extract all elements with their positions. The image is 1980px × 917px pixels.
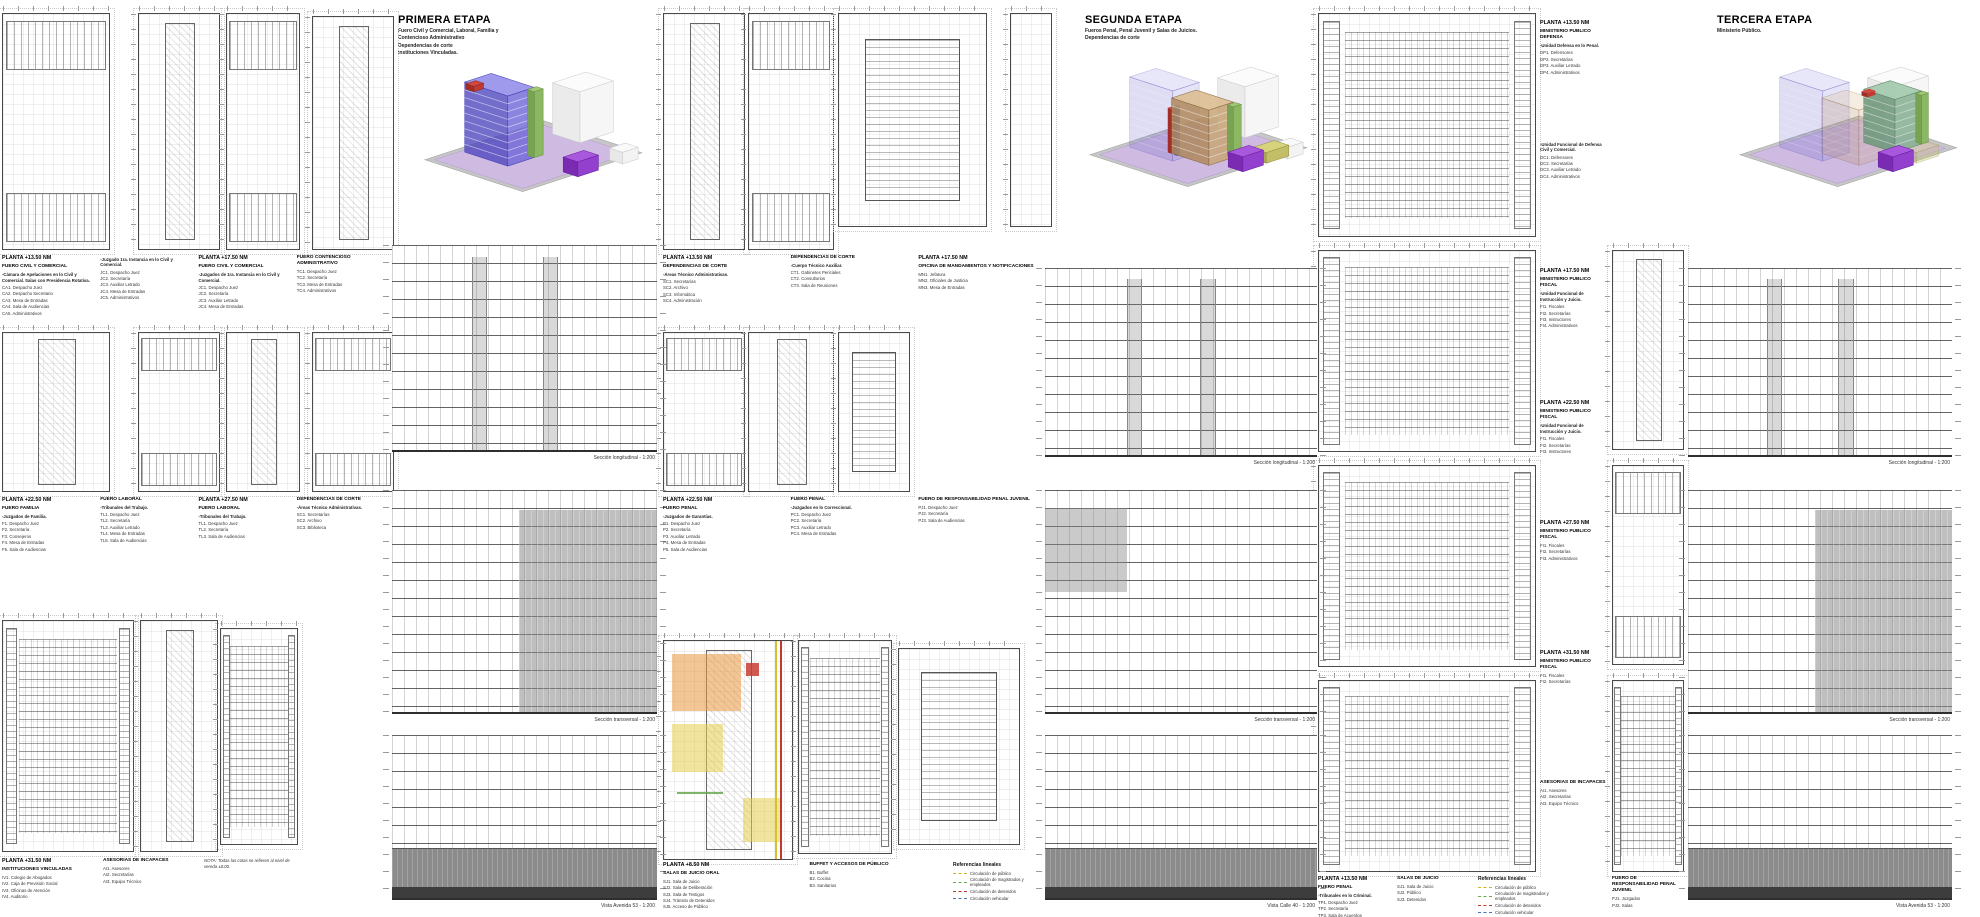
- floor-plan: [663, 13, 745, 250]
- legend-item-label: Circulación de detenidos: [1495, 903, 1541, 908]
- caption-column: FUERO DE RESPONSABILIDAD PENAL JUVENILPJ…: [918, 497, 1038, 524]
- legend-item-label: Circulación vehicular: [1495, 910, 1534, 915]
- caption-column: FUERO PENAL-Juzgados en lo Correccional.…: [791, 497, 911, 538]
- stage-name: TERCERA ETAPA: [1717, 14, 1907, 26]
- program-heading: FUERO PENAL: [791, 497, 911, 503]
- program-heading: FUERO CIVIL Y COMERCIAL: [2, 264, 92, 270]
- legend-line-swatch: [953, 873, 967, 874]
- caption-column: BUFFET Y ACCESOS DE PÚBLICOB1. BuffetB2.…: [810, 862, 949, 889]
- legend-item-label: Circulación vehicular: [970, 896, 1009, 901]
- stage-name: SEGUNDA ETAPA: [1085, 14, 1300, 26]
- legend-line-swatch: [1478, 905, 1492, 906]
- corridor-strip: [1514, 472, 1531, 660]
- office-strip: [141, 338, 216, 372]
- caption-column: PLANTA +13.50 NMDEPENDENCIAS DE CORTE-Ár…: [663, 255, 783, 305]
- planta-level-label: PLANTA +27.50 NM: [1540, 520, 1606, 526]
- legend-item-label: Circulación de público: [1495, 885, 1536, 890]
- floor-plan: [138, 332, 220, 492]
- workstation-area: [230, 646, 288, 827]
- caption-column: -Juzgado 1ra. Instancia en lo Civil y Co…: [100, 255, 190, 302]
- corridor-strip: [223, 635, 230, 837]
- office-strip: [6, 21, 106, 70]
- workstation-area: [1345, 32, 1509, 219]
- floor-plan: [838, 13, 987, 227]
- program-heading: MINISTERIO PUBLICO FISCAL: [1540, 409, 1606, 421]
- facade-plinth: [1688, 887, 1952, 898]
- program-heading: ASESORIAS DE INCAPACES: [103, 858, 196, 864]
- floor-plan: [2, 332, 110, 492]
- caption-column: PLANTA +17.50 NMMINISTERIO PUBLICO FISCA…: [1540, 268, 1606, 330]
- caption-column: PLANTA +27.50 NMMINISTERIO PUBLICO FISCA…: [1540, 520, 1606, 562]
- planta-level-label: PLANTA +22.50 NM: [1540, 400, 1606, 406]
- caption-column: SALAS DE JUICIOSJ1. Sala de JuicioSJ2. P…: [1397, 876, 1468, 903]
- office-strip: [1615, 472, 1681, 514]
- program-heading: INSTITUCIONES VINCULADAS: [2, 867, 95, 873]
- floor-plan: [1010, 13, 1052, 227]
- program-item: TP3. Sala de Acuerdos: [1318, 913, 1389, 917]
- legend-item: Circulación de magistrados y empleados: [953, 877, 1043, 887]
- caption-column: FUERO CONTENCIOSO ADMINISTRATIVOTC1. Des…: [297, 255, 387, 295]
- program-subheading: -Áreas Técnico Administrativas.: [297, 505, 387, 511]
- legend-item: Circulación de público: [1478, 885, 1568, 890]
- caption-column: DEPENDENCIAS DE CORTE-Cuerpo Técnico Aux…: [791, 255, 911, 289]
- elevator-shaft: [1838, 279, 1853, 455]
- elevation-drawing: Sección transversal - 1:200: [1688, 490, 1952, 714]
- facade-dark-panel: [519, 510, 657, 712]
- elevation-caption: Sección transversal - 1:200: [1254, 717, 1315, 723]
- axonometric-massing-svg: [1735, 40, 1970, 210]
- legend-line-swatch: [1478, 912, 1492, 913]
- legend-title: Referencias lineales: [1478, 876, 1568, 882]
- program-item: MN3. Mesa de Entradas: [918, 285, 1038, 291]
- program-item: CA5. Administrativos: [2, 311, 92, 317]
- elevation-caption: Sección longitudinal - 1:200: [1254, 460, 1315, 466]
- elevation-caption: Sección longitudinal - 1:200: [1889, 460, 1950, 466]
- program-subheading: -Unidad Defensa en lo Penal.: [1540, 43, 1606, 49]
- elevation-caption: Sección longitudinal - 1:200: [594, 455, 655, 461]
- program-item: FI3. Instructores: [1540, 449, 1606, 455]
- office-strip: [666, 338, 741, 372]
- hall-area: [852, 352, 897, 472]
- line-references-legend: Referencias linealesCirculación de públi…: [953, 862, 1043, 903]
- program-item: B3. Sanitarios: [810, 883, 949, 889]
- floor-plan: [140, 620, 218, 852]
- planta-level-label: PLANTA +27.50 NM: [199, 497, 289, 503]
- line-references-legend: Referencias linealesCirculación de públi…: [1478, 876, 1568, 917]
- planta-level-label: PLANTA +31.50 NM: [1540, 650, 1606, 656]
- elevator-shaft: [1767, 279, 1782, 455]
- program-heading: FUERO PENAL: [1318, 885, 1389, 891]
- legend-item: Circulación de detenidos: [953, 889, 1043, 894]
- highlight-orange: [672, 654, 741, 711]
- office-strip: [229, 193, 297, 242]
- program-subheading: -Unidad Funcional de Defensa Civil y Com…: [1540, 142, 1606, 154]
- floor-plan: [312, 16, 394, 250]
- program-heading: FUERO LABORAL: [199, 506, 289, 512]
- caption-block: -Unidad Funcional de Defensa Civil y Com…: [1540, 140, 1606, 180]
- floor-plan: [898, 648, 1020, 845]
- floor-plan: [1318, 13, 1536, 237]
- program-heading: DEPENDENCIAS DE CORTE: [791, 255, 911, 261]
- program-subheading: -Juzgados de Familia.: [2, 514, 92, 520]
- caption-column: ASESORIAS DE INCAPACESAI1. AsesoresAI2. …: [103, 858, 196, 885]
- program-subheading: -Juzgados de Garantías.: [663, 514, 783, 520]
- facade-plinth: [392, 887, 657, 898]
- service-core: [690, 23, 719, 239]
- caption-block: ASESORIAS DE INCAPACESAI1. AsesoresAI2. …: [1540, 780, 1606, 807]
- service-core: [166, 630, 194, 842]
- elevation-drawing: Sección longitudinal - 1:200: [392, 245, 657, 452]
- legend-item: Circulación de detenidos: [1478, 903, 1568, 908]
- service-core: [165, 23, 194, 239]
- legend-line-swatch: [1478, 896, 1492, 897]
- program-item: PC4. Mesa de Entradas: [791, 531, 911, 537]
- presentation-sheet: PRIMERA ETAPA Fuero Civil y Comercial, L…: [0, 0, 1980, 917]
- workstation-area: [1345, 482, 1509, 650]
- program-heading: MINISTERIO PUBLICO DEFENSA: [1540, 29, 1606, 41]
- legend-item: Circulación vehicular: [1478, 910, 1568, 915]
- caption-block: PLANTA +13.50 NMFUERO CIVIL Y COMERCIAL-…: [2, 255, 387, 317]
- caption-column: PLANTA +17.50 NMOFICINA DE MANDAMIENTOS …: [918, 255, 1038, 291]
- caption-column: FUERO DE RESPONSABILIDAD PENAL JUVENILPJ…: [1612, 876, 1682, 909]
- legend-item-label: Circulación de detenidos: [970, 889, 1016, 894]
- circulation-line-yellow: [775, 641, 777, 859]
- program-heading: FUERO PENAL: [663, 506, 783, 512]
- floor-plan: [220, 628, 298, 845]
- legend-item-label: Circulación de magistrados y empleados: [970, 877, 1043, 887]
- floor-plan: [226, 13, 300, 250]
- planta-level-label: PLANTA +13.50 NM: [1318, 876, 1389, 882]
- elevation-caption: Vista Avenida 53 - 1:200: [601, 903, 655, 909]
- program-subheading: -Áreas Técnico Administrativas.: [663, 272, 783, 278]
- program-subheading: -Juzgados en lo Correccional.: [791, 505, 911, 511]
- planta-level-label: PLANTA +17.50 NM: [199, 255, 289, 261]
- floor-plan: [1612, 680, 1684, 872]
- floor-plan: [838, 332, 910, 492]
- corridor-strip: [1514, 257, 1531, 445]
- program-item: PJ2. Salas: [1612, 903, 1682, 909]
- elevation-drawing: Vista Avenida 53 - 1:200: [1688, 735, 1952, 900]
- elevation-drawing: Sección longitudinal - 1:200: [1045, 268, 1317, 457]
- corridor-strip: [801, 647, 809, 846]
- planta-level-label: PLANTA +13.50 NM: [1540, 20, 1606, 26]
- planta-level-label: PLANTA +17.50 NM: [1540, 268, 1606, 274]
- office-strip: [752, 193, 831, 242]
- facade-plinth: [1045, 887, 1317, 898]
- workstation-area: [1621, 696, 1674, 856]
- caption-column: PLANTA +31.50 NMMINISTERIO PUBLICO FISCA…: [1540, 650, 1606, 686]
- elevation-drawing: Sección transversal - 1:200: [392, 490, 657, 714]
- legend-line-swatch: [953, 891, 967, 892]
- legend-item: Circulación de público: [953, 871, 1043, 876]
- program-item: JC4. Mesa de Entradas: [199, 304, 289, 310]
- program-subheading: -Cámara de Apelaciones en lo Civil y Com…: [2, 272, 92, 284]
- caption-block: FUERO DE RESPONSABILIDAD PENAL JUVENILPJ…: [1612, 876, 1682, 909]
- elevation-drawing: Sección longitudinal - 1:200: [1688, 268, 1952, 457]
- service-core: [339, 26, 368, 239]
- program-item: SJ5. Acceso de Público: [663, 904, 802, 910]
- office-strip: [752, 21, 831, 70]
- corridor-strip: [6, 628, 17, 844]
- caption-block: PLANTA +13.50 NMDEPENDENCIAS DE CORTE-Ár…: [663, 255, 1038, 305]
- floor-plan: [2, 13, 110, 250]
- highlight-yellow: [672, 724, 723, 772]
- office-strip: [315, 338, 390, 372]
- stage-title-segunda: SEGUNDA ETAPA Fueros Penal, Penal Juveni…: [1085, 14, 1300, 43]
- hall-area: [921, 672, 998, 820]
- axonometric-massing-svg: [420, 45, 655, 215]
- caption-column: PLANTA +22.50 NMFUERO FAMILIA-Juzgados d…: [2, 497, 92, 553]
- planta-level-label: PLANTA +17.50 NM: [918, 255, 1038, 261]
- legend-line-swatch: [1478, 887, 1492, 888]
- program-heading: SALAS DE JUICIO: [1397, 876, 1468, 882]
- program-subheading: -Tribunales del Trabajo.: [199, 514, 289, 520]
- planta-level-label: PLANTA +13.50 NM: [2, 255, 92, 261]
- service-core: [38, 339, 76, 484]
- service-core: [777, 339, 808, 484]
- corridor-strip: [288, 635, 295, 837]
- floor-plan: [748, 332, 834, 492]
- program-subheading: -Cuerpo Técnico Auxiliar.: [791, 263, 911, 269]
- corridor-strip: [881, 647, 889, 846]
- floor-plan: [138, 13, 220, 250]
- caption-block: PLANTA +13.50 NMFUERO PENAL-Tribunales e…: [1318, 876, 1468, 917]
- service-core: [251, 339, 277, 484]
- elevator-shaft: [472, 257, 487, 450]
- program-item: DC4. Administrativos: [1540, 174, 1606, 180]
- program-heading: FUERO DE RESPONSABILIDAD PENAL JUVENIL: [1612, 876, 1682, 895]
- floor-plan: [2, 620, 134, 852]
- caption-block: PLANTA +13.50 NMMINISTERIO PUBLICO DEFEN…: [1540, 20, 1606, 76]
- floor-plan: [1318, 250, 1536, 452]
- legend-line-swatch: [953, 898, 967, 899]
- planta-level-label: PLANTA +31.50 NM: [2, 858, 95, 864]
- legend-title: Referencias lineales: [953, 862, 1043, 868]
- floor-plan: [748, 13, 834, 250]
- planta-level-label: PLANTA +22.50 NM: [663, 497, 783, 503]
- program-item: TL5. Sala de Audiencias: [100, 538, 190, 544]
- elevation-caption: Sección transversal - 1:200: [594, 717, 655, 723]
- program-item: IV4. Auditorio: [2, 894, 95, 900]
- program-item: PJ3. Sala de Audiencias: [918, 518, 1038, 524]
- legend-item-label: Circulación de público: [970, 871, 1011, 876]
- circulation-line-green: [677, 792, 723, 794]
- program-item: FI2. Secretarías: [1540, 679, 1606, 685]
- corridor-strip: [1323, 21, 1340, 230]
- program-subheading: -Tribunales del Trabajo.: [100, 505, 190, 511]
- facade-dark-panel: [1815, 510, 1952, 712]
- floor-plan: [226, 332, 300, 492]
- floor-plan: [798, 640, 892, 854]
- workstation-area: [810, 658, 880, 836]
- office-strip: [666, 453, 741, 487]
- office-strip: [229, 21, 297, 70]
- program-heading: FUERO CONTENCIOSO ADMINISTRATIVO: [297, 255, 387, 267]
- elevation-caption: Vista Calle 40 - 1:200: [1267, 903, 1315, 909]
- caption-column: PLANTA +13.50 NMFUERO CIVIL Y COMERCIAL-…: [2, 255, 92, 317]
- program-item: JC5. Administrativos: [100, 295, 190, 301]
- office-strip: [141, 453, 216, 487]
- program-item: AI3. Equipo Técnico: [103, 879, 196, 885]
- program-heading: DEPENDENCIAS DE CORTE: [297, 497, 387, 503]
- axonometric-massing-svg: [1085, 40, 1320, 210]
- floor-plan: [663, 332, 745, 492]
- caption-column: PLANTA +27.50 NMFUERO LABORAL-Tribunales…: [199, 497, 289, 540]
- program-item: DP4. Administrativos: [1540, 70, 1606, 76]
- legend-item: Circulación vehicular: [953, 896, 1043, 901]
- caption-block: PLANTA +31.50 NMMINISTERIO PUBLICO FISCA…: [1540, 650, 1606, 686]
- program-heading: MINISTERIO PUBLICO FISCAL: [1540, 529, 1606, 541]
- caption-column: PLANTA +17.50 NMFUERO CIVIL Y COMERCIAL-…: [199, 255, 289, 311]
- elevator-shaft: [1127, 279, 1143, 455]
- highlight-red: [746, 663, 759, 676]
- workstation-area: [19, 639, 118, 832]
- planta-level-label: PLANTA +22.50 NM: [2, 497, 92, 503]
- corridor-strip: [119, 628, 130, 844]
- program-heading: BUFFET Y ACCESOS DE PÚBLICO: [810, 862, 949, 868]
- caption-block: PLANTA +8.50 NMSALAS DE JUICIO ORALSJ1. …: [663, 862, 948, 911]
- workstation-area: [1345, 267, 1509, 435]
- program-item: CT3. Sala de Reuniones: [791, 283, 911, 289]
- legend-item-label: Circulación de magistrados y empleados: [1495, 891, 1568, 901]
- program-heading: FUERO CIVIL Y COMERCIAL: [199, 264, 289, 270]
- program-item: FI3. Administrativos: [1540, 556, 1606, 562]
- corridor-strip: [1614, 687, 1621, 866]
- service-core: [1636, 259, 1662, 441]
- office-strip: [1615, 616, 1681, 658]
- stage-title-tercera: TERCERA ETAPA Ministerio Público.: [1717, 14, 1907, 35]
- caption-column: ASESORIAS DE INCAPACESAI1. AsesoresAI2. …: [1540, 780, 1606, 807]
- planta-level-label: PLANTA +13.50 NM: [663, 255, 783, 261]
- program-heading: DEPENDENCIAS DE CORTE: [663, 264, 783, 270]
- elevation-drawing: Sección transversal - 1:200: [1045, 490, 1317, 714]
- floor-plan: [312, 332, 394, 492]
- program-subheading: -Unidad Funcional de Instrucción y Juici…: [1540, 291, 1606, 303]
- caption-column: -Unidad Funcional de Defensa Civil y Com…: [1540, 140, 1606, 180]
- program-subheading: -Juzgados de 1ra. Instancia en lo Civil …: [199, 272, 289, 284]
- caption-column: NOTA: Todas las cotas se refieren al niv…: [204, 858, 297, 870]
- axonometric-view: [420, 45, 655, 215]
- caption-block: PLANTA +27.50 NMMINISTERIO PUBLICO FISCA…: [1540, 520, 1606, 562]
- corridor-strip: [1514, 21, 1531, 230]
- program-item: TC4. Administrativos: [297, 288, 387, 294]
- workstation-area: [1345, 696, 1509, 856]
- caption-column: FUERO LABORAL-Tribunales del Trabajo.TL1…: [100, 497, 190, 544]
- caption-column: PLANTA +8.50 NMSALAS DE JUICIO ORALSJ1. …: [663, 862, 802, 911]
- stage-name: PRIMERA ETAPA: [398, 14, 568, 26]
- program-heading: MINISTERIO PUBLICO FISCAL: [1540, 277, 1606, 289]
- circulation-line-red: [780, 641, 782, 859]
- caption-block: PLANTA +22.50 NMFUERO PENAL-Juzgados de …: [663, 497, 1038, 553]
- program-heading: FUERO LABORAL: [100, 497, 190, 503]
- program-item: SJ3. Detenidos: [1397, 897, 1468, 903]
- program-heading: FUERO DE RESPONSABILIDAD PENAL JUVENIL: [918, 497, 1038, 503]
- caption-column: PLANTA +22.50 NMMINISTERIO PUBLICO FISCA…: [1540, 400, 1606, 455]
- caption-block: PLANTA +22.50 NMMINISTERIO PUBLICO FISCA…: [1540, 400, 1606, 455]
- caption-column: PLANTA +13.50 NMFUERO PENAL-Tribunales e…: [1318, 876, 1389, 917]
- floor-plan: [1612, 250, 1684, 450]
- program-subheading: -Unidad Funcional de Instrucción y Juici…: [1540, 423, 1606, 435]
- caption-column: DEPENDENCIAS DE CORTE-Áreas Técnico Admi…: [297, 497, 387, 531]
- elevation-caption: Vista Avenida 53 - 1:200: [1896, 903, 1950, 909]
- program-item: SC3. Biblioteca: [297, 525, 387, 531]
- program-heading: SALAS DE JUICIO ORAL: [663, 871, 802, 877]
- note-text: NOTA: Todas las cotas se refieren al niv…: [204, 858, 297, 870]
- elevation-caption: Sección transversal - 1:200: [1889, 717, 1950, 723]
- planta-level-label: PLANTA +8.50 NM: [663, 862, 802, 868]
- legend-line-swatch: [953, 882, 967, 883]
- caption-column: PLANTA +31.50 NMINSTITUCIONES VINCULADAS…: [2, 858, 95, 900]
- program-item: P5. Sala de Audiencias: [663, 547, 783, 553]
- floor-plan: [1318, 680, 1536, 872]
- program-heading: FUERO FAMILIA: [2, 506, 92, 512]
- program-item: TL3. Sala de Audiencias: [199, 534, 289, 540]
- facade-dark-panel: [1045, 508, 1127, 592]
- floor-plan: [1612, 465, 1684, 665]
- caption-block: PLANTA +22.50 NMFUERO FAMILIA-Juzgados d…: [2, 497, 387, 553]
- program-item: SC4. Administración: [663, 298, 783, 304]
- program-item: AI3. Equipo Técnico: [1540, 801, 1606, 807]
- caption-column: PLANTA +13.50 NMMINISTERIO PUBLICO DEFEN…: [1540, 20, 1606, 76]
- axonometric-view: [1085, 40, 1320, 210]
- axonometric-view: [1735, 40, 1970, 210]
- elevation-drawing: Vista Avenida 53 - 1:200: [392, 735, 657, 900]
- program-subheading: -Tribunales en lo Criminal.: [1318, 893, 1389, 899]
- office-strip: [6, 193, 106, 242]
- corridor-strip: [1514, 687, 1531, 866]
- caption-block: PLANTA +17.50 NMMINISTERIO PUBLICO FISCA…: [1540, 268, 1606, 330]
- floor-plan: [1318, 465, 1536, 667]
- elevation-drawing: Vista Calle 40 - 1:200: [1045, 735, 1317, 900]
- program-heading: MINISTERIO PUBLICO FISCAL: [1540, 659, 1606, 671]
- program-item: F5. Sala de Audiencias: [2, 547, 92, 553]
- program-heading: OFICINA DE MANDAMIENTOS Y NOTIFICACIONES: [918, 264, 1038, 270]
- elevator-shaft: [1200, 279, 1216, 455]
- office-strip: [315, 453, 390, 487]
- elevator-shaft: [543, 257, 558, 450]
- floor-plan-highlighted: [663, 640, 793, 860]
- stage-subtitle: Ministerio Público.: [1717, 28, 1907, 35]
- legend-item: Circulación de magistrados y empleados: [1478, 891, 1568, 901]
- program-subheading: -Juzgado 1ra. Instancia en lo Civil y Co…: [100, 257, 190, 269]
- program-heading: ASESORIAS DE INCAPACES: [1540, 780, 1606, 786]
- hall-area: [865, 39, 959, 200]
- caption-block: PLANTA +31.50 NMINSTITUCIONES VINCULADAS…: [2, 858, 297, 900]
- caption-column: PLANTA +22.50 NMFUERO PENAL-Juzgados de …: [663, 497, 783, 553]
- program-item: FI4. Administrativos: [1540, 323, 1606, 329]
